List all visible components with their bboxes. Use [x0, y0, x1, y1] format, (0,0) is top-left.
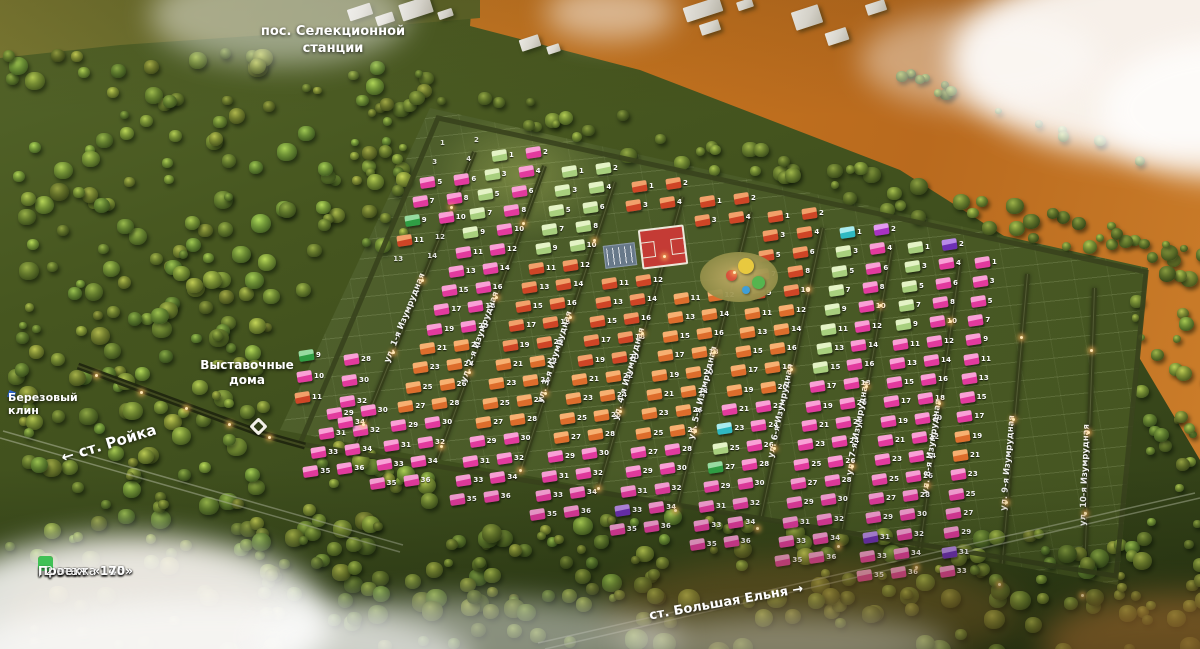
street-light	[1084, 512, 1087, 515]
street-light	[522, 222, 525, 225]
street-light	[641, 332, 644, 335]
street-light	[495, 296, 498, 299]
show-homes-label: Выставочные дома	[192, 358, 302, 388]
street-light	[450, 206, 453, 209]
street-light	[392, 351, 395, 354]
street-light	[519, 469, 522, 472]
settlement-label: пос. Селекционной станции	[258, 24, 408, 58]
street-light	[569, 316, 572, 319]
street-light	[865, 385, 868, 388]
street-light	[95, 374, 98, 377]
street-light	[597, 487, 600, 490]
street-light	[440, 445, 443, 448]
street-light	[663, 255, 666, 258]
street-light	[949, 320, 952, 323]
street-light	[268, 436, 271, 439]
street-light	[468, 371, 471, 374]
street-light	[915, 566, 918, 569]
street-light	[837, 545, 840, 548]
street-light	[362, 423, 365, 426]
street-light	[756, 527, 759, 530]
street-light	[733, 271, 736, 274]
project-name-label: Березовый клин	[8, 391, 108, 417]
street-lights-layer	[0, 0, 1200, 649]
street-light	[1005, 501, 1008, 504]
street-light	[674, 509, 677, 512]
street-light	[773, 447, 776, 450]
street-light	[140, 391, 143, 394]
street-light	[1090, 349, 1093, 352]
street-light	[1020, 336, 1023, 339]
masterplan-map: 1234567891011121314293031323334353612345…	[0, 0, 1200, 649]
street-light	[879, 304, 882, 307]
street-light	[1081, 594, 1084, 597]
street-light	[713, 351, 716, 354]
street-light	[998, 583, 1001, 586]
street-light	[1012, 418, 1015, 421]
street-light	[790, 368, 793, 371]
street-light	[544, 392, 547, 395]
street-light	[593, 239, 596, 242]
street-light	[228, 423, 231, 426]
street-light	[851, 465, 854, 468]
street-light	[926, 484, 929, 487]
street-light	[694, 430, 697, 433]
street-light	[1087, 431, 1090, 434]
street-light	[938, 402, 941, 405]
street-light	[619, 410, 622, 413]
street-light	[421, 279, 424, 282]
street-light	[807, 288, 810, 291]
